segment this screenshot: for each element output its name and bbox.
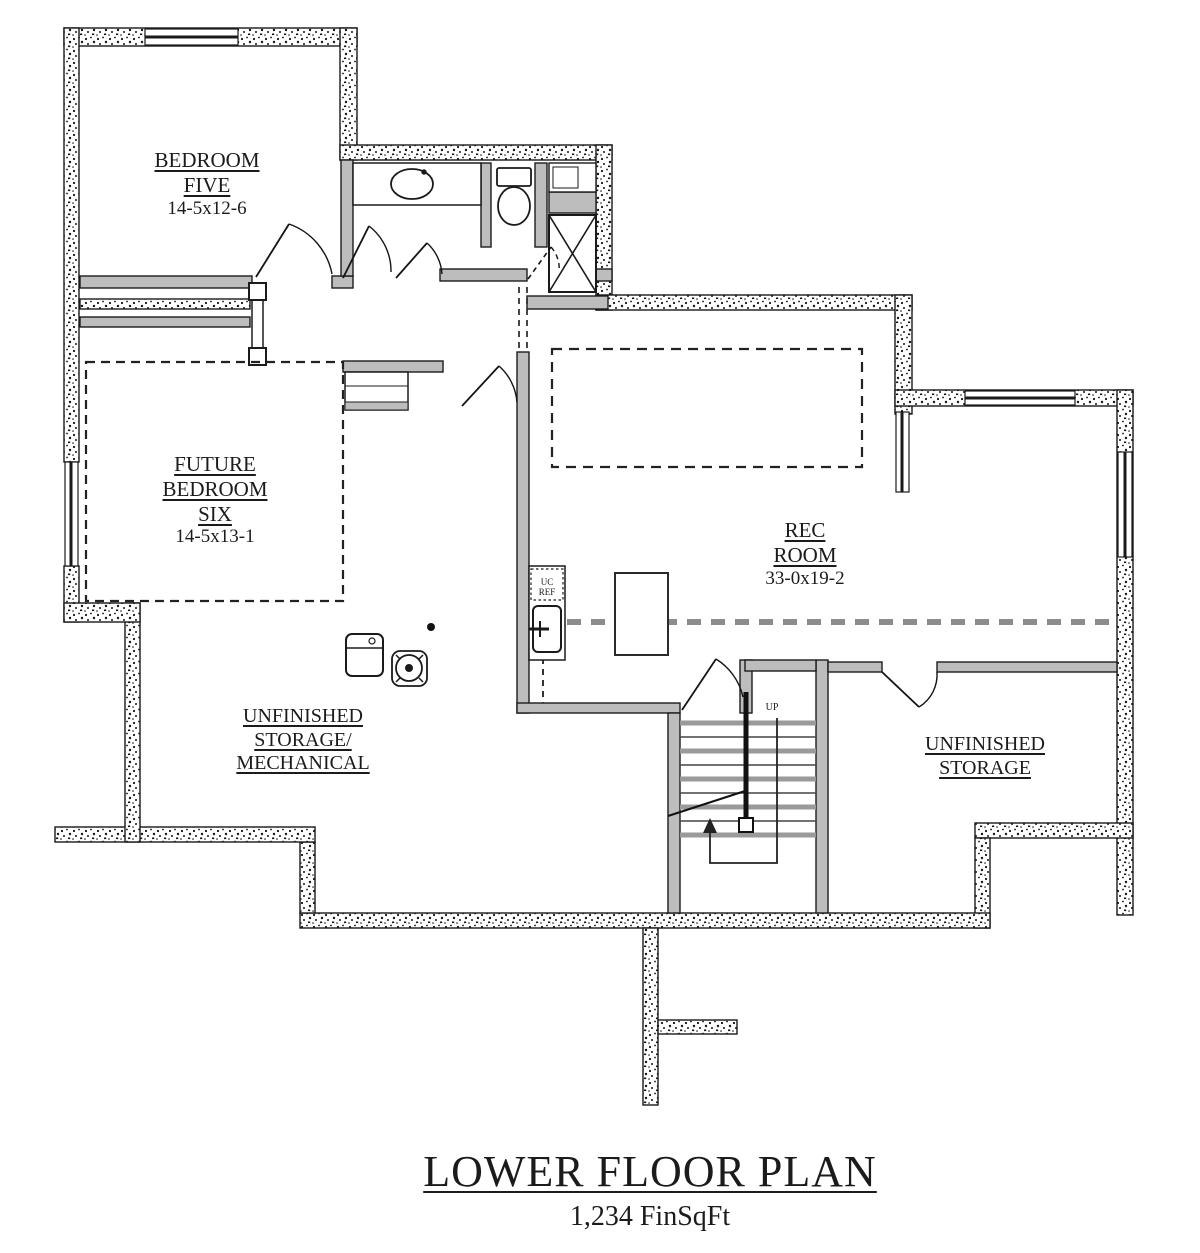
mechanical-equipment bbox=[346, 623, 435, 686]
room-name-line: SIX bbox=[162, 502, 267, 527]
room-name-line: FUTURE bbox=[162, 452, 267, 477]
floor-drain-dot bbox=[427, 623, 435, 631]
stairs-up-label: UP bbox=[766, 703, 779, 714]
window-bedroom-five-north bbox=[145, 29, 238, 45]
room-label-unfinished-storage: UNFINISHED STORAGE bbox=[925, 733, 1045, 780]
room-name-line: STORAGE bbox=[925, 757, 1045, 781]
vanity-sink bbox=[391, 169, 433, 199]
bar-fridge-label: UC REF bbox=[539, 578, 556, 598]
room-label-bedroom-five: BEDROOM FIVE 14-5x12-6 bbox=[154, 148, 259, 220]
stairs-up-text: UP bbox=[766, 703, 779, 714]
room-dimensions: 14-5x12-6 bbox=[154, 198, 259, 220]
shower bbox=[549, 215, 596, 292]
water-heater bbox=[346, 634, 383, 676]
room-name-line: FIVE bbox=[154, 173, 259, 198]
room-name-line: BEDROOM bbox=[154, 148, 259, 173]
room-dimensions: 14-5x13-1 bbox=[162, 526, 267, 548]
room-name-line: BEDROOM bbox=[162, 477, 267, 502]
room-name-line: ROOM bbox=[765, 543, 844, 568]
window-rec-east bbox=[1118, 452, 1132, 557]
room-label-rec-room: REC ROOM 33-0x19-2 bbox=[765, 518, 844, 590]
title-block: LOWER FLOOR PLAN 1,234 FinSqFt bbox=[423, 1146, 877, 1233]
furnace bbox=[392, 651, 427, 686]
wall-posts bbox=[249, 283, 266, 365]
room-name-line: STORAGE/ bbox=[236, 729, 369, 753]
window-rec-west-step bbox=[896, 412, 909, 492]
room-label-future-bedroom-six: FUTURE BEDROOM SIX 14-5x13-1 bbox=[162, 452, 267, 549]
room-name-line: MECHANICAL bbox=[236, 752, 369, 776]
room-dimensions: 33-0x19-2 bbox=[765, 568, 844, 590]
toilet-tank bbox=[497, 168, 531, 186]
room-name-line: REC bbox=[765, 518, 844, 543]
rec-room-dashed-area bbox=[552, 349, 862, 467]
support-column bbox=[615, 573, 668, 655]
plan-title: LOWER FLOOR PLAN bbox=[423, 1146, 877, 1197]
room-name-line: UNFINISHED bbox=[925, 733, 1045, 757]
window-future-bedroom-west bbox=[65, 462, 78, 566]
room-name-line: UNFINISHED bbox=[236, 705, 369, 729]
floor-plan-page: BEDROOM FIVE 14-5x12-6 FUTURE BEDROOM SI… bbox=[0, 0, 1200, 1253]
window-rec-north bbox=[965, 391, 1075, 405]
hall-niche bbox=[345, 372, 408, 410]
toilet-bowl bbox=[498, 187, 530, 225]
bar-fridge-text-line: REF bbox=[539, 588, 556, 598]
staircase bbox=[668, 692, 816, 863]
room-label-unfinished-storage-mechanical: UNFINISHED STORAGE/ MECHANICAL bbox=[236, 705, 369, 776]
sink-faucet-dot bbox=[422, 170, 426, 174]
plan-area: 1,234 FinSqFt bbox=[423, 1201, 877, 1233]
